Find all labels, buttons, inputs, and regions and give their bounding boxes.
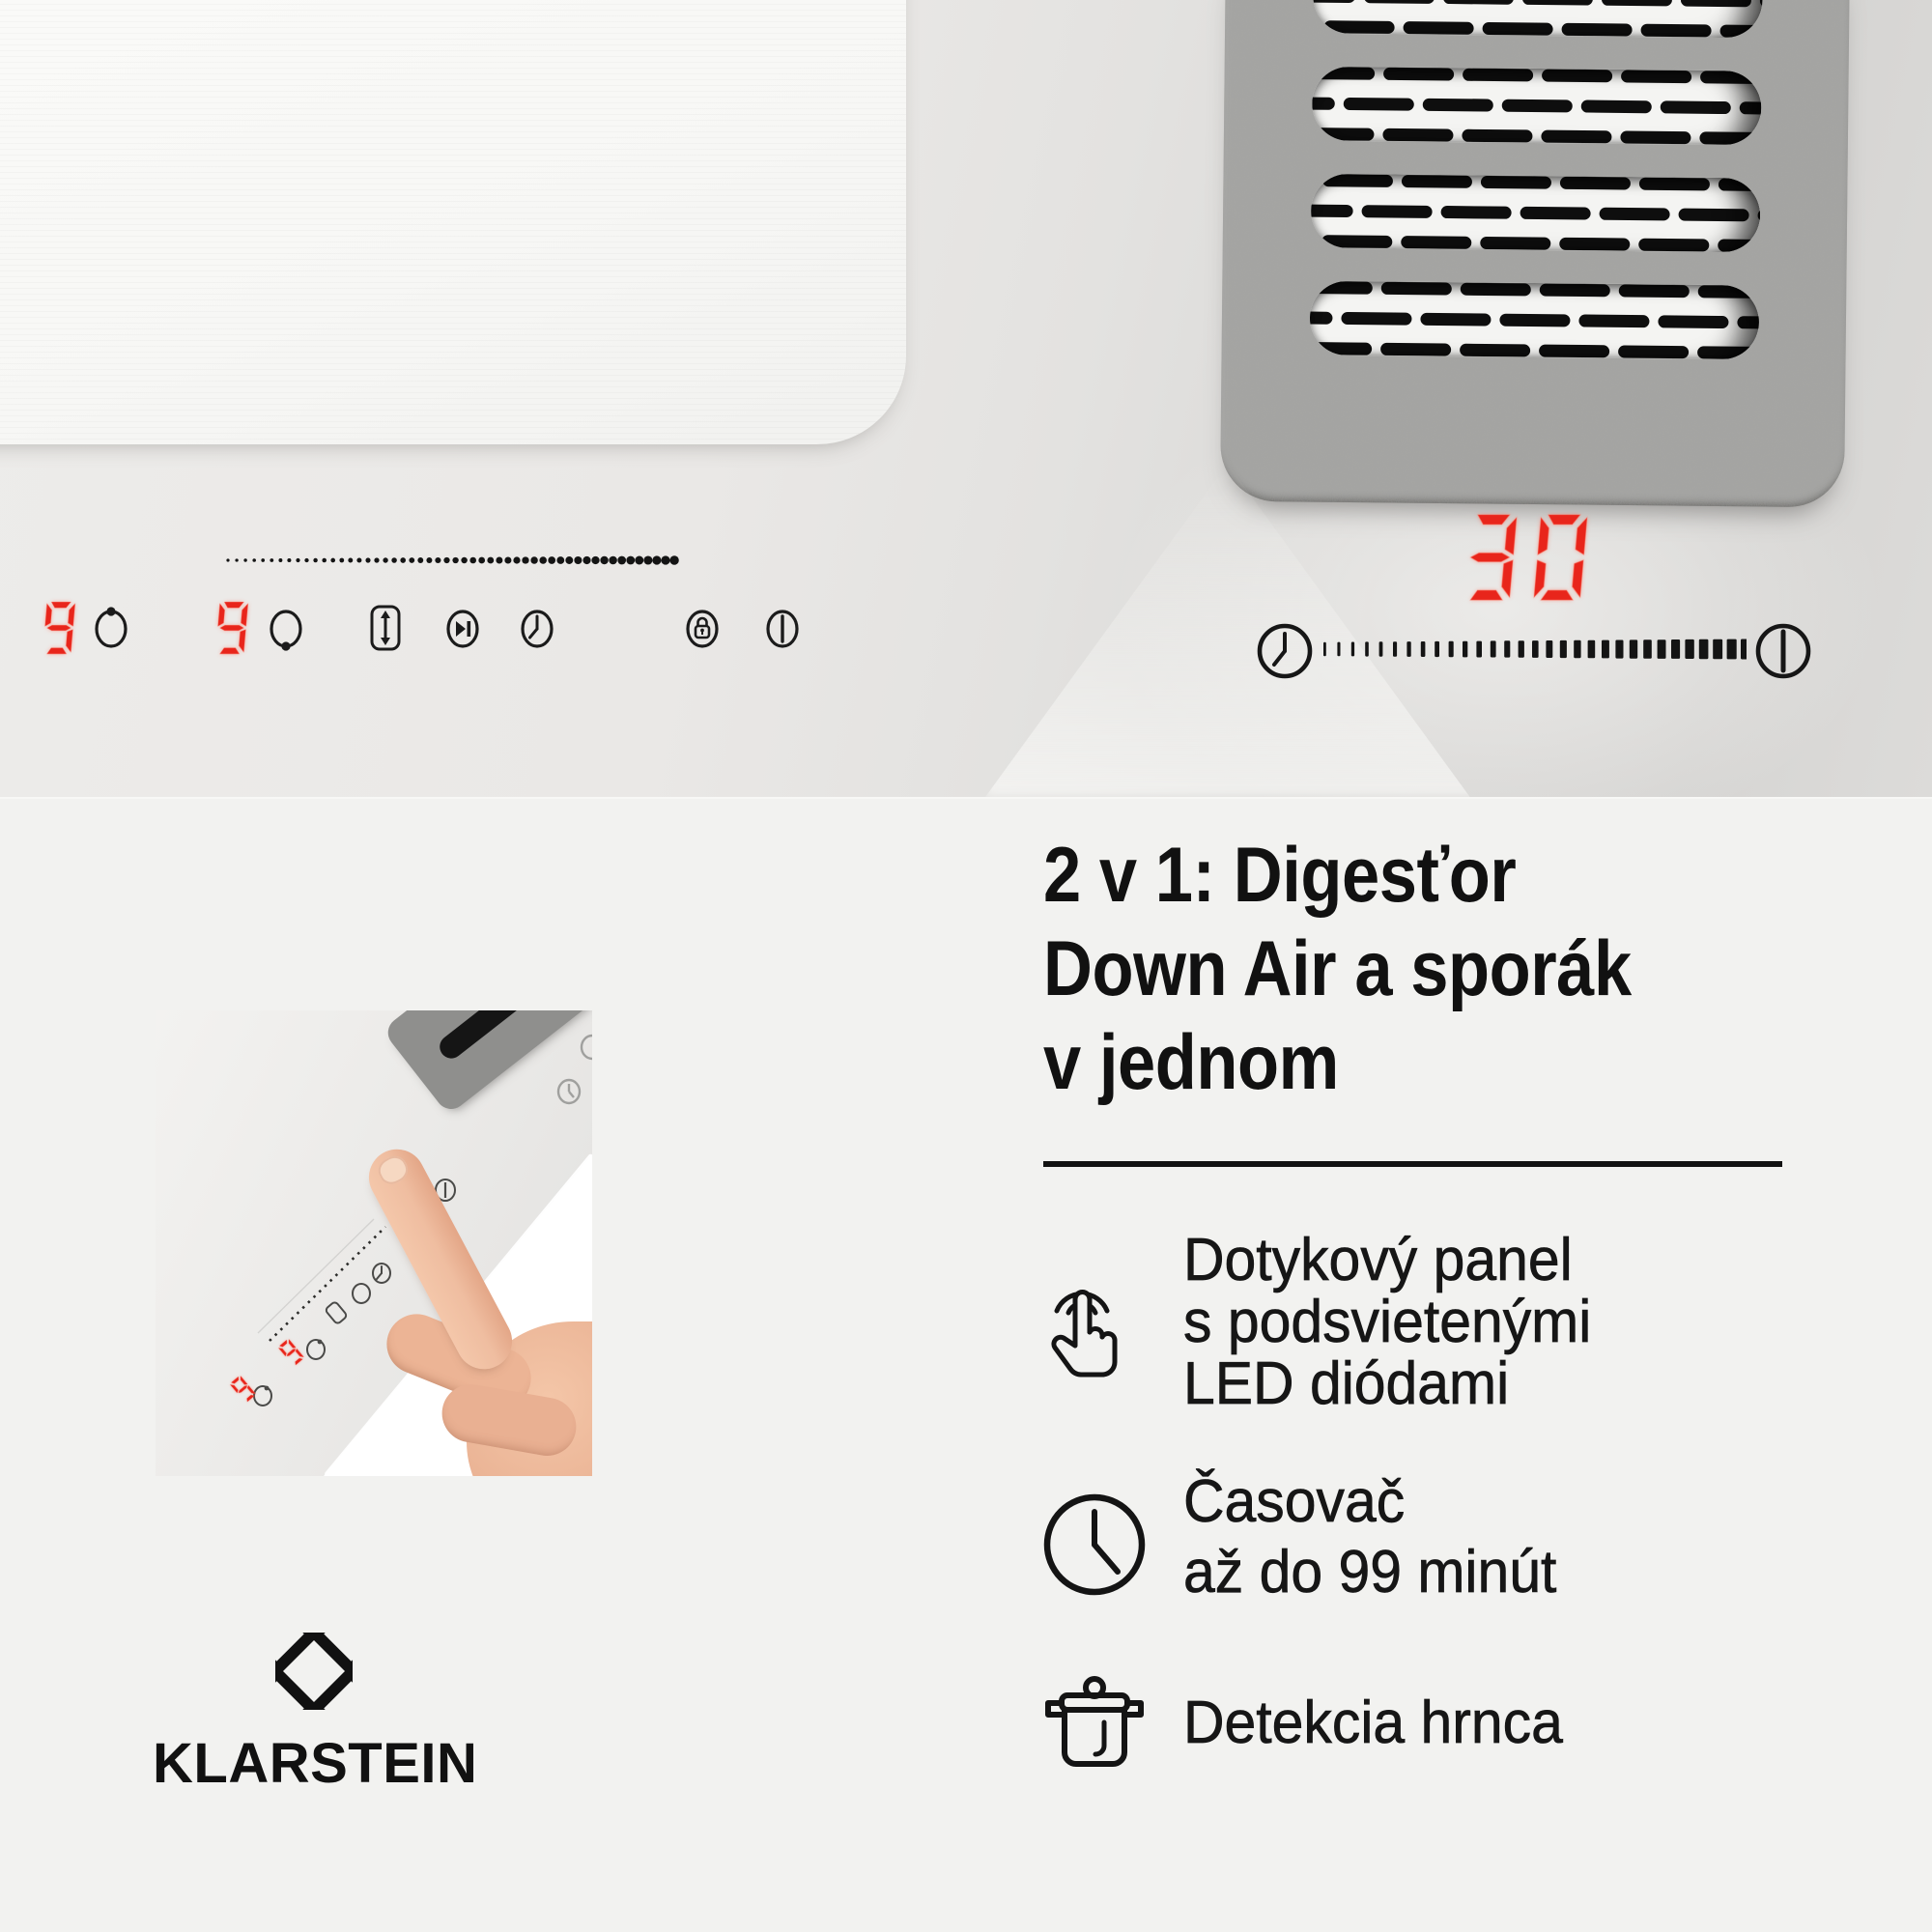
zone-front-icon — [90, 605, 132, 651]
cooktop-glass-panel — [0, 0, 906, 444]
boost-skip-icon — [441, 605, 484, 651]
product-image: 2 v 1: Digesťor Down Air a sporák v jedn… — [0, 0, 1932, 1932]
grille-slot — [1310, 281, 1760, 360]
feature-1: Dotykový panel s podsvietenými LED dióda… — [1183, 1230, 1613, 1415]
feature-3-line1: Detekcia hrnca — [1183, 1692, 1563, 1754]
grille-slot — [1312, 67, 1762, 146]
klarstein-wordmark: KLARSTEIN — [153, 1731, 477, 1796]
hood-timer-display — [1461, 513, 1590, 602]
hood-fan-tick-slider — [1321, 632, 1747, 667]
headline-line1: 2 v 1: Digesťor — [1043, 829, 1516, 923]
info-panel: 2 v 1: Digesťor Down Air a sporák v jedn… — [0, 797, 1932, 1932]
feature-2: Časovač až do 99 minút — [1183, 1471, 1577, 1604]
timer-clock-icon — [516, 605, 558, 651]
divider-rule — [1043, 1161, 1782, 1167]
headline: 2 v 1: Digesťor Down Air a sporák v jedn… — [1043, 829, 1719, 1110]
feature-1-line2: s podsvietenými — [1183, 1292, 1591, 1353]
feature-3: Detekcia hrnca — [1183, 1692, 1583, 1754]
grille-slot — [1313, 0, 1763, 38]
zone1-level-display — [42, 601, 77, 655]
feature-2-line2: až do 99 minút — [1183, 1542, 1556, 1604]
bridge-zone-icon — [364, 605, 407, 651]
zone2-level-display — [214, 601, 250, 655]
product-photo — [0, 0, 1932, 797]
touch-icon — [1030, 1270, 1151, 1398]
power-level-dot-slider — [220, 547, 684, 574]
hood-timer-clock-icon — [1254, 620, 1316, 682]
child-lock-icon — [681, 605, 724, 651]
pot-icon — [1038, 1676, 1152, 1778]
zone-back-icon — [265, 605, 307, 651]
clock-icon — [1040, 1491, 1149, 1599]
grille-slot — [1311, 174, 1761, 253]
klarstein-logo-icon — [275, 1633, 353, 1710]
feature-1-line3: LED diódami — [1183, 1353, 1509, 1415]
fingernail — [374, 1151, 412, 1188]
headline-line2: Down Air a sporák — [1043, 923, 1632, 1016]
touch-panel-detail-photo — [156, 1010, 592, 1476]
headline-line3: v jednom — [1043, 1016, 1339, 1110]
power-icon — [761, 605, 804, 651]
hood-power-icon — [1752, 620, 1814, 682]
feature-2-line1: Časovač — [1183, 1471, 1405, 1533]
feature-1-line1: Dotykový panel — [1183, 1230, 1573, 1292]
downdraft-vent-grille — [1220, 0, 1850, 507]
